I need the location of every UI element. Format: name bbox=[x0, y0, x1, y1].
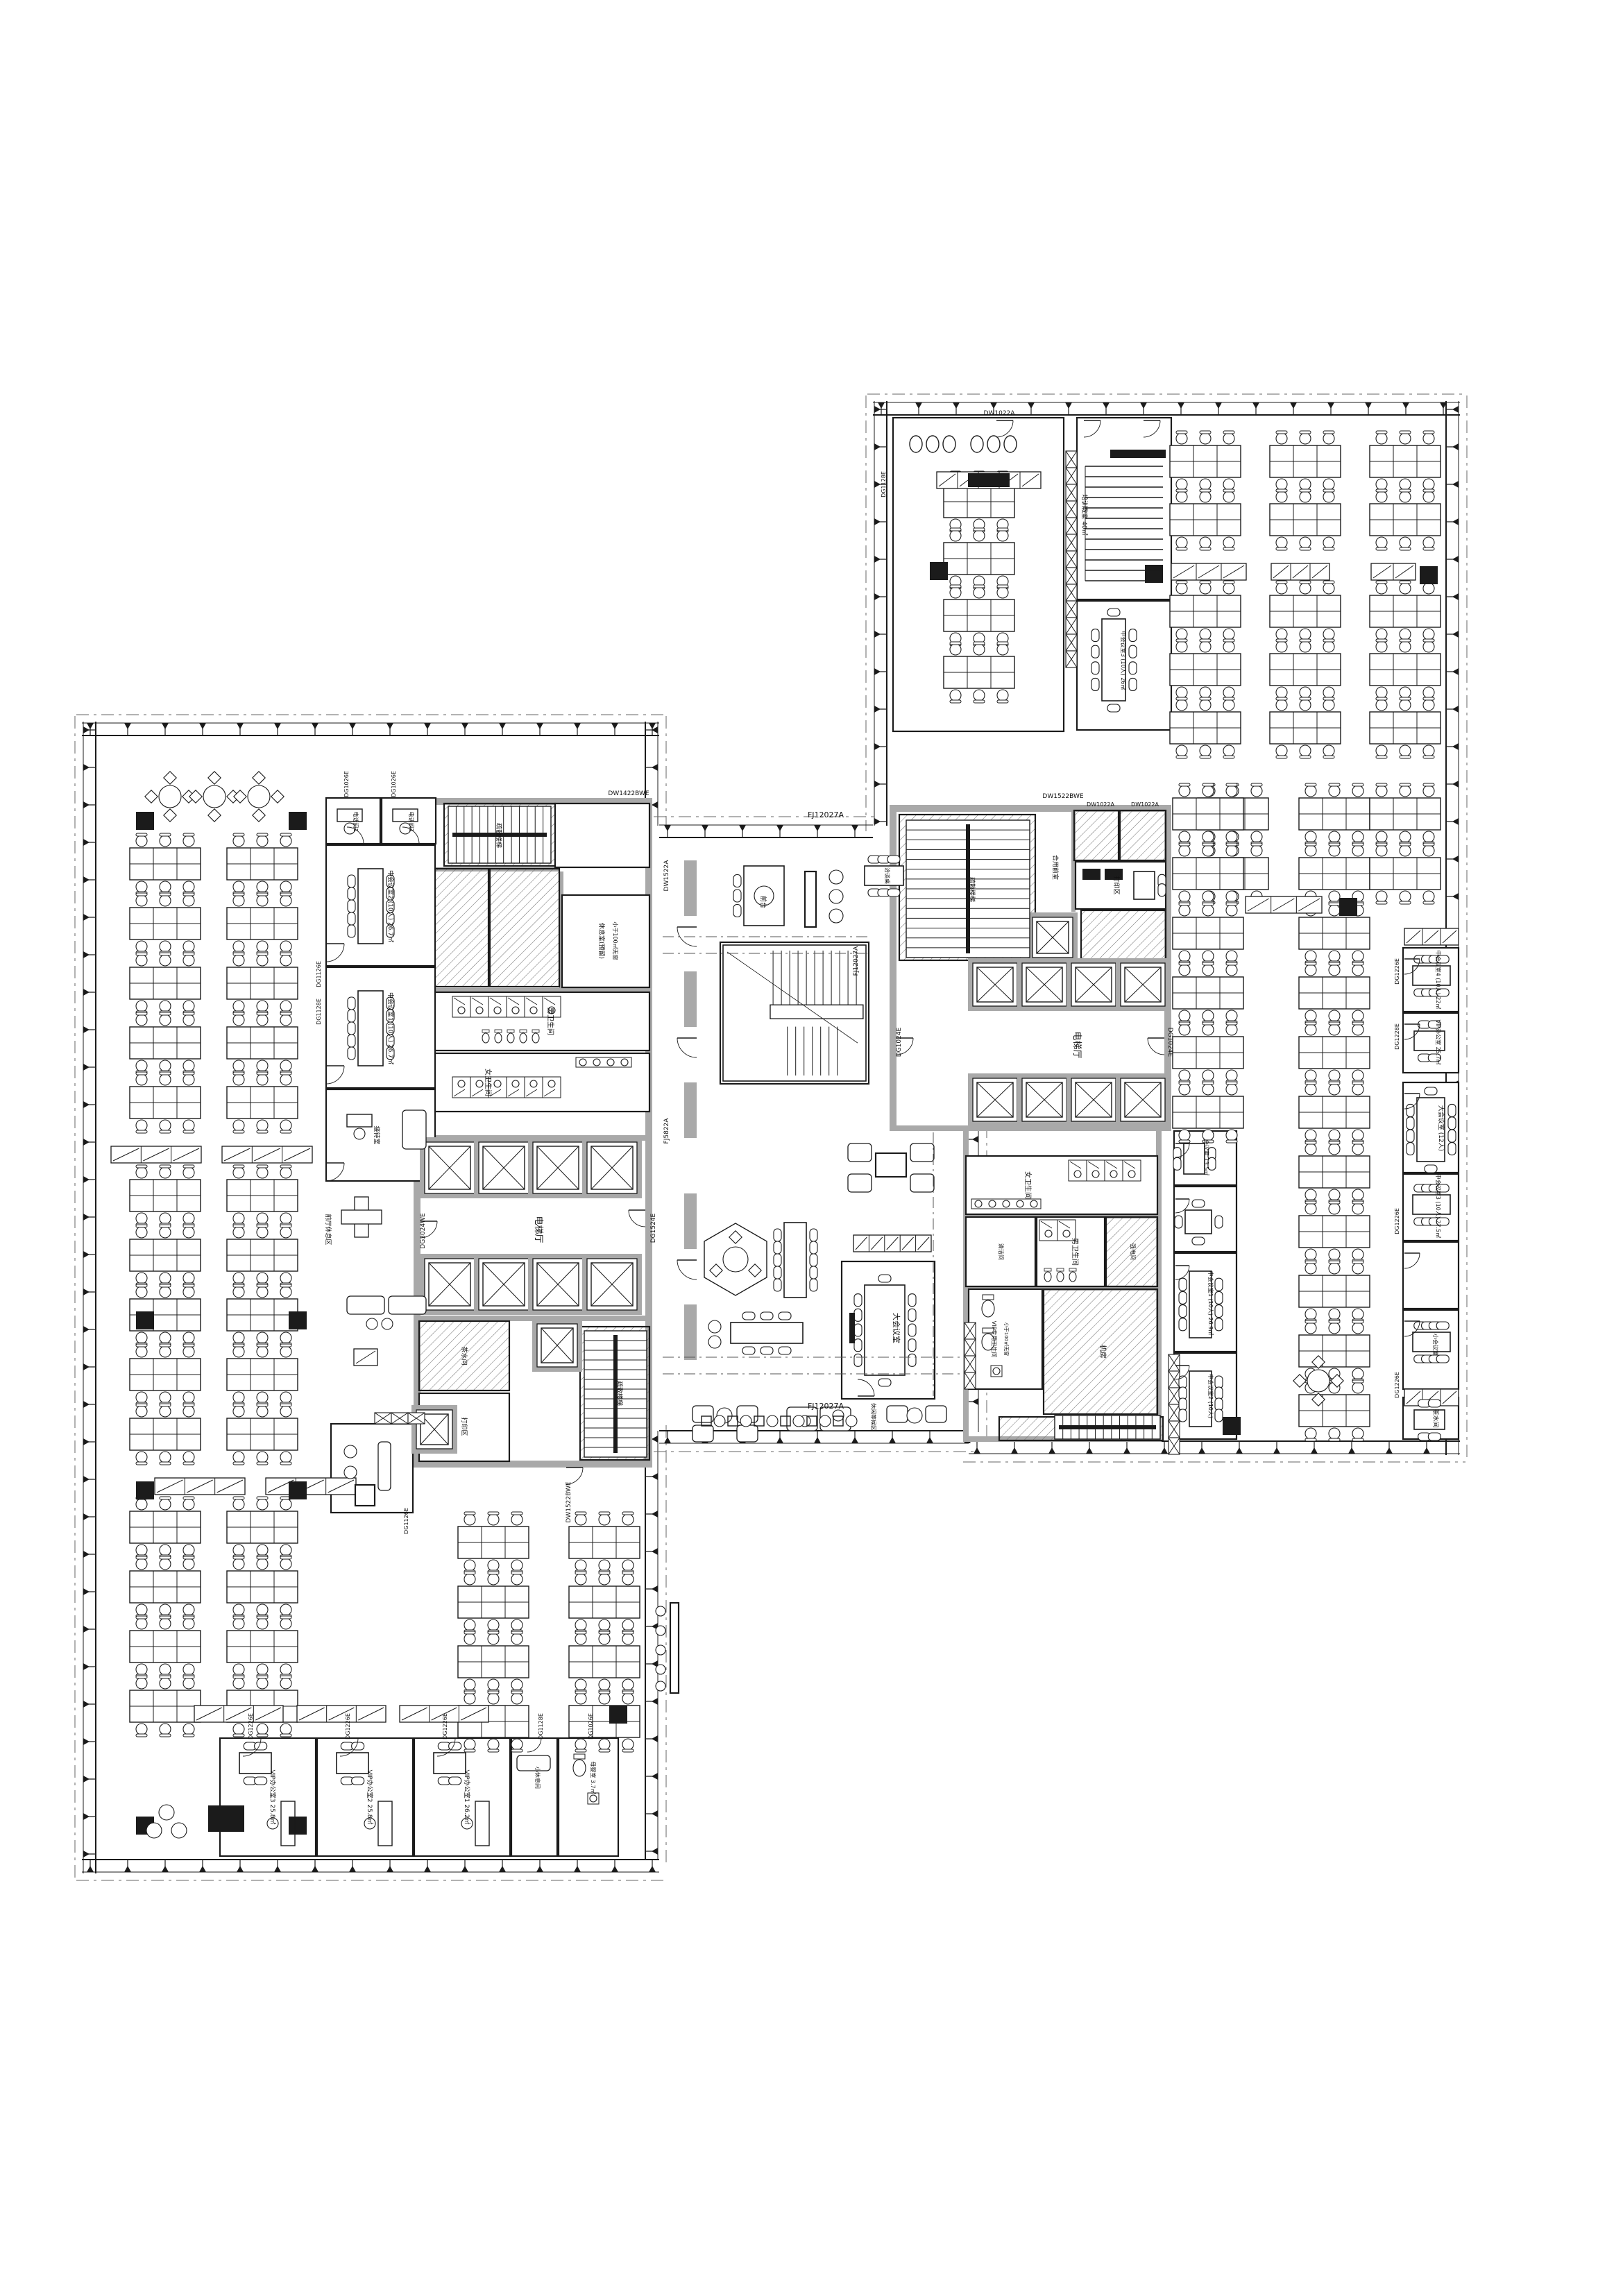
plan-label-text: DG1026E bbox=[588, 1713, 594, 1740]
desk-cluster bbox=[1173, 1082, 1243, 1143]
toilet-fixture bbox=[573, 1754, 586, 1776]
plan-label-text: 前厅休息区 bbox=[324, 1214, 332, 1245]
solid-fixture bbox=[1082, 869, 1101, 880]
plan-label: 前厅休息区 bbox=[324, 1214, 332, 1245]
meeting-table bbox=[731, 1312, 803, 1354]
interior-wall bbox=[890, 1125, 1170, 1131]
desk-cluster bbox=[130, 1404, 201, 1465]
plan-label: VIP办公室 25.7㎡ bbox=[1435, 1019, 1442, 1064]
desk-zone bbox=[1170, 431, 1441, 550]
plan-label-text: DG1126E bbox=[403, 1508, 409, 1534]
exterior-wall-band bbox=[76, 1860, 665, 1880]
room bbox=[355, 1485, 375, 1506]
plan-label-text: DG1226E bbox=[345, 1713, 351, 1740]
sofa bbox=[378, 1442, 391, 1490]
elevator-shaft bbox=[474, 1137, 534, 1198]
desk-cluster bbox=[1173, 1022, 1243, 1083]
plan-label: DG1226E bbox=[442, 1713, 448, 1740]
plan-label-text: 前台 bbox=[759, 896, 767, 908]
plan-label: 疏散楼梯 bbox=[615, 1381, 624, 1406]
storage-cabinet bbox=[354, 1349, 377, 1366]
plan-label-text: 疏散楼梯 bbox=[615, 1381, 624, 1406]
plan-label: 中会议室3 (10人) 26㎡ bbox=[1120, 631, 1127, 690]
meeting-table bbox=[239, 1742, 271, 1785]
desk-zone bbox=[944, 471, 1014, 703]
plan-label-text: 培训教室 40㎡ bbox=[1080, 494, 1089, 535]
desk-cluster bbox=[458, 1631, 529, 1692]
storage-cabinet bbox=[1271, 563, 1329, 580]
desk-zone bbox=[1170, 581, 1441, 758]
exterior-wall-band bbox=[75, 716, 96, 1879]
locker-cabinet bbox=[1169, 1354, 1180, 1454]
stool bbox=[829, 870, 843, 884]
plan-label: 中会议室1 (10人) 26.9㎡ bbox=[1207, 1271, 1214, 1335]
desk-cluster bbox=[1170, 581, 1241, 642]
door-swing bbox=[629, 1210, 645, 1227]
plan-label-text: DG1128E bbox=[538, 1713, 544, 1740]
meeting-table bbox=[1413, 1184, 1450, 1225]
desk-cluster bbox=[227, 1072, 298, 1133]
desk-cluster bbox=[130, 1497, 201, 1558]
plan-label: 电话间1 bbox=[352, 811, 359, 831]
storage-cabinet bbox=[266, 1478, 356, 1495]
plan-label: DG1126E bbox=[403, 1508, 409, 1534]
desk-cluster bbox=[1370, 697, 1441, 758]
elevator-shaft bbox=[1017, 1073, 1071, 1126]
plan-label-text: 男卫生间 bbox=[1071, 1238, 1080, 1266]
plan-label-text: DG1226E bbox=[442, 1713, 448, 1740]
stool bbox=[171, 1823, 187, 1838]
interior-wall bbox=[684, 1082, 697, 1138]
interior-wall bbox=[684, 860, 697, 916]
desk-zone bbox=[1173, 783, 1243, 1143]
plan-label: 电梯厅 bbox=[533, 1216, 543, 1243]
plan-label-text: 休闲等候区 bbox=[870, 1403, 877, 1431]
desk-cluster bbox=[1299, 1380, 1370, 1441]
plan-label: 小休息间 bbox=[534, 1767, 541, 1789]
plan-label: 女卫生间 bbox=[1023, 1171, 1033, 1199]
plan-label-text: 中会议室1 (10人) 26.7㎡ bbox=[386, 992, 395, 1064]
plan-label-text: DG1226E bbox=[248, 1713, 254, 1740]
plan-label: DW1522BWE bbox=[566, 1481, 572, 1522]
hatched-room bbox=[490, 869, 559, 987]
plan-label-text: 洽谈桌 bbox=[884, 867, 891, 884]
desk-cluster bbox=[130, 1676, 201, 1737]
plan-label: 母婴室 3.7㎡ bbox=[590, 1761, 597, 1794]
plan-label: 培训教室 40㎡ bbox=[1080, 494, 1089, 535]
elevator-shaft bbox=[582, 1254, 642, 1315]
desk-cluster bbox=[130, 1072, 201, 1133]
plan-label: DG1128E bbox=[881, 471, 887, 498]
stool bbox=[829, 909, 843, 923]
plan-label-text: DG1026E bbox=[391, 771, 397, 797]
plan-label: DW1022A bbox=[1131, 801, 1159, 808]
desk-cluster bbox=[227, 1556, 298, 1617]
plan-label: DG1126E bbox=[316, 961, 322, 987]
plan-label: DG1226E bbox=[345, 1713, 351, 1740]
desk-cluster bbox=[1299, 1022, 1370, 1083]
stool bbox=[366, 1318, 377, 1329]
plan-label: 疏散楼梯 bbox=[968, 877, 976, 902]
desk-cluster bbox=[1370, 783, 1441, 844]
plan-label: DW1522A bbox=[663, 860, 670, 892]
plan-label-text: DG1026E bbox=[343, 771, 350, 797]
toilet-fixture bbox=[982, 1295, 994, 1317]
plan-label-text: 强电间 bbox=[1130, 1243, 1137, 1260]
round-table bbox=[234, 772, 284, 822]
plan-label: VIP办公室3 25.8㎡ bbox=[269, 1770, 277, 1825]
plan-label-text: 电梯厅 bbox=[533, 1216, 543, 1243]
stool bbox=[708, 1336, 721, 1348]
plan-label-text: DW1422BWE bbox=[608, 790, 649, 797]
plan-label: 疏散楼梯 bbox=[495, 823, 503, 848]
desk-cluster bbox=[1299, 1201, 1370, 1262]
cross-sofa bbox=[341, 1197, 382, 1237]
desk-cluster bbox=[130, 953, 201, 1014]
stool bbox=[656, 1626, 665, 1635]
structural-column bbox=[1223, 1417, 1241, 1435]
plan-label-text: FJ12027A bbox=[853, 946, 860, 976]
plan-label: 机房 bbox=[1098, 1345, 1107, 1359]
door-swing bbox=[677, 1038, 697, 1057]
sofa bbox=[692, 1406, 713, 1422]
plan-label: 合用前室 bbox=[1051, 855, 1060, 880]
exterior-wall-band bbox=[76, 715, 665, 735]
interior-wall bbox=[684, 971, 697, 1027]
plan-label-text: 打印区 bbox=[460, 1417, 468, 1436]
plan-label-text: DG1226E bbox=[1394, 1372, 1400, 1398]
room bbox=[1403, 1242, 1459, 1309]
plan-label-text: 小会议室 bbox=[1432, 1334, 1439, 1356]
elevator-shaft bbox=[968, 1073, 1022, 1126]
exterior-wall-band bbox=[645, 1425, 666, 1865]
plan-label-text: DG1128E bbox=[881, 471, 887, 498]
storage-cabinet bbox=[155, 1478, 245, 1495]
exterior-wall-band bbox=[963, 1441, 1465, 1462]
desk-zone bbox=[1370, 783, 1441, 904]
desk-cluster bbox=[944, 528, 1014, 589]
desk-cluster bbox=[227, 1012, 298, 1073]
interior-wall bbox=[890, 805, 897, 1131]
desk-cluster bbox=[1299, 783, 1370, 844]
plan-label: 小于100㎡无窗 bbox=[612, 921, 619, 960]
plan-label-text: 女卫生间 bbox=[1023, 1171, 1033, 1199]
plan-label: 会议室 13.5㎡ bbox=[1203, 1139, 1210, 1175]
plan-label-text: DW1522BWE bbox=[1042, 793, 1083, 800]
plan-label: DW1522BWE bbox=[1042, 793, 1083, 800]
sofa bbox=[692, 1425, 713, 1442]
desk-cluster bbox=[1370, 431, 1441, 492]
sofa bbox=[887, 1406, 908, 1422]
structural-column bbox=[136, 812, 154, 830]
desk-cluster bbox=[1299, 1141, 1370, 1202]
stool bbox=[907, 1408, 922, 1423]
desk-cluster bbox=[1270, 697, 1341, 758]
elevator-shaft bbox=[528, 1254, 588, 1315]
sofa bbox=[402, 1110, 426, 1149]
structural-column bbox=[289, 1311, 307, 1329]
stair bbox=[906, 820, 1030, 958]
door-swing bbox=[677, 1260, 697, 1279]
locker-cabinet bbox=[1066, 451, 1077, 667]
desk-cluster bbox=[944, 642, 1014, 703]
feature-stair bbox=[723, 945, 866, 1081]
plan-label: FJ5822A bbox=[663, 1118, 670, 1144]
desk-cluster bbox=[1170, 489, 1241, 550]
plan-label-text: VIP办公室2 25.8㎡ bbox=[366, 1770, 374, 1825]
plan-label-text: FJ12027A bbox=[808, 1402, 844, 1411]
stool bbox=[344, 1445, 357, 1458]
plan-label: 休闲等候区 bbox=[870, 1403, 877, 1431]
stool bbox=[382, 1318, 393, 1329]
plan-label: DG1024E bbox=[896, 1027, 903, 1057]
meeting-table bbox=[865, 856, 903, 896]
plan-label: 电梯厅 bbox=[1071, 1031, 1082, 1058]
floor-plan-svg: FJ12027ADW1522AFJ5822AFJ12027AFJ12027A休闲… bbox=[0, 0, 1623, 2296]
plan-label-text: 疏散楼梯 bbox=[495, 823, 503, 848]
desk-cluster bbox=[1270, 581, 1341, 642]
desk-cluster bbox=[569, 1572, 640, 1633]
sink bbox=[991, 1366, 1002, 1377]
plan-label-text: DG3024WE bbox=[420, 1213, 427, 1249]
plan-label-text: 机房 bbox=[1098, 1345, 1107, 1359]
plan-label: 打印区 bbox=[460, 1417, 468, 1436]
plan-label: 中会议室4 (10人) 22㎡ bbox=[1435, 951, 1442, 1010]
exterior-wall-band bbox=[866, 396, 887, 831]
desk-cluster bbox=[1173, 962, 1243, 1023]
sofa bbox=[926, 1406, 946, 1422]
plan-label: 茶水间 bbox=[460, 1346, 468, 1365]
room bbox=[876, 1153, 906, 1177]
plan-label-text: 女卫生间 bbox=[484, 1069, 493, 1096]
desk-cluster bbox=[227, 893, 298, 954]
plan-label-text: 电话间1 bbox=[352, 811, 359, 831]
stair bbox=[1055, 1415, 1160, 1439]
storage-cabinet bbox=[1404, 928, 1459, 945]
plan-label: DG1026E bbox=[391, 771, 397, 797]
solid-fixture bbox=[1110, 450, 1166, 458]
desk-cluster bbox=[130, 833, 201, 894]
plan-label-text: 电梯厅 bbox=[1071, 1031, 1082, 1058]
plan-label-text: 茶水间 bbox=[1431, 1409, 1440, 1427]
elevator-shaft bbox=[582, 1137, 642, 1198]
plan-label-text: FJ12027A bbox=[808, 810, 844, 819]
plan-label: 男卫生间 bbox=[546, 1007, 555, 1035]
elevator-shaft bbox=[420, 1137, 479, 1198]
plan-label-text: VIP办公室 25.7㎡ bbox=[1435, 1019, 1442, 1064]
storage-cabinet bbox=[1246, 896, 1322, 913]
desk-cluster bbox=[1170, 431, 1241, 492]
elevator-shaft bbox=[1116, 1073, 1170, 1126]
plan-label-text: 电话间2 bbox=[408, 811, 415, 831]
desk-cluster bbox=[569, 1691, 640, 1752]
plan-label: 女卫生间 bbox=[484, 1069, 493, 1096]
meeting-table bbox=[1134, 871, 1166, 899]
desk-cluster bbox=[227, 833, 298, 894]
plan-label-text: 会议室 13.5㎡ bbox=[1203, 1139, 1210, 1175]
desk-cluster bbox=[130, 1344, 201, 1405]
plan-label: DW1022A bbox=[1087, 801, 1114, 808]
plan-label: DG1026E bbox=[588, 1713, 594, 1740]
desk-cluster bbox=[1370, 581, 1441, 642]
plan-label-text: DG1226E bbox=[1394, 1208, 1400, 1234]
desk-cluster bbox=[458, 1512, 529, 1573]
desk-zone bbox=[130, 1165, 298, 1465]
plan-label-text: 中会议室3 (10人) 27.5㎡ bbox=[1435, 1174, 1442, 1238]
desk-cluster bbox=[227, 1165, 298, 1226]
plan-label-text: VIP专用卫生间 bbox=[991, 1321, 998, 1358]
plan-label: DG1128E bbox=[538, 1713, 544, 1740]
desk-cluster bbox=[1173, 783, 1243, 844]
stool bbox=[656, 1665, 665, 1674]
plan-label: 清洁间 bbox=[998, 1243, 1005, 1260]
plan-label: 小于100㎡无窗 bbox=[1003, 1323, 1010, 1356]
plan-label-text: 接待室 bbox=[373, 1125, 381, 1144]
storage-cabinet bbox=[1371, 563, 1416, 580]
elevator-shaft bbox=[1067, 958, 1121, 1011]
elevator-shaft bbox=[532, 1319, 582, 1372]
plan-label: 中会议室1 (10人) 26.7㎡ bbox=[386, 992, 395, 1064]
plan-label: 中会议室3 (10人) 27.5㎡ bbox=[1435, 1174, 1442, 1238]
plan-label-text: 中会议室2 (10人) 26.7㎡ bbox=[386, 870, 395, 942]
plan-label-text: 母婴室 3.7㎡ bbox=[590, 1761, 597, 1794]
plan-label: VIP专用卫生间 bbox=[991, 1321, 998, 1358]
storage-cabinet bbox=[222, 1146, 312, 1163]
desk-cluster bbox=[130, 1556, 201, 1617]
stool bbox=[656, 1645, 665, 1655]
plan-label-text: DW1022A bbox=[984, 410, 1016, 417]
sofa bbox=[910, 1174, 934, 1192]
plan-label: FJ12027A bbox=[808, 1402, 844, 1411]
plan-label-text: 休息室(预留) bbox=[597, 923, 606, 959]
structural-column bbox=[930, 562, 948, 580]
elevator-shaft bbox=[1017, 958, 1071, 1011]
meeting-table bbox=[337, 1742, 368, 1785]
desk-cluster bbox=[227, 1616, 298, 1677]
interior-wall bbox=[684, 1304, 697, 1360]
desk-cluster bbox=[1170, 639, 1241, 700]
desk-cluster bbox=[1173, 903, 1243, 964]
plan-label: FJ12027A bbox=[853, 946, 860, 976]
plan-label: 前台 bbox=[759, 896, 767, 908]
desk-cluster bbox=[227, 1284, 298, 1345]
meeting-table bbox=[1413, 955, 1450, 996]
storage-cabinet bbox=[297, 1706, 386, 1722]
elevator-shaft bbox=[420, 1254, 479, 1315]
stool bbox=[833, 1410, 844, 1421]
solid-fixture bbox=[849, 1313, 855, 1343]
plan-label: FJ12027A bbox=[808, 810, 844, 819]
desk-cluster bbox=[569, 1512, 640, 1573]
meeting-table bbox=[774, 1223, 817, 1298]
plan-label: DG1226E bbox=[248, 1713, 254, 1740]
sofa bbox=[347, 1296, 384, 1314]
plan-label: 小会议室 bbox=[1432, 1334, 1439, 1356]
plan-label: 茶水间 bbox=[1431, 1409, 1440, 1427]
plan-label-text: 男卫生间 bbox=[546, 1007, 555, 1035]
desk-cluster bbox=[227, 1344, 298, 1405]
desk-cluster bbox=[1370, 489, 1441, 550]
solid-fixture bbox=[208, 1805, 244, 1832]
desk-cluster bbox=[1299, 1261, 1370, 1322]
plan-label: 洽谈桌 bbox=[884, 867, 891, 884]
plan-label-text: 小休息间 bbox=[534, 1767, 541, 1789]
elevator-shaft bbox=[1028, 912, 1078, 962]
plan-label-text: FJ5822A bbox=[663, 1118, 670, 1144]
desk-cluster bbox=[1299, 1320, 1370, 1381]
room bbox=[562, 895, 649, 987]
plan-label: DW1022A bbox=[984, 410, 1016, 417]
plan-label: 打印区 bbox=[1112, 876, 1121, 894]
locker-cabinet bbox=[375, 1413, 425, 1424]
stair bbox=[584, 1331, 647, 1457]
desk-cluster bbox=[130, 893, 201, 954]
room bbox=[805, 871, 816, 927]
storage-cabinet bbox=[194, 1706, 283, 1722]
door-swing bbox=[566, 1468, 583, 1484]
elevator-shaft bbox=[968, 958, 1022, 1011]
stool bbox=[656, 1606, 665, 1616]
plan-label-text: DW1522BWE bbox=[566, 1481, 572, 1522]
desk-cluster bbox=[1299, 843, 1370, 904]
plan-label: 大会议室 (12人) bbox=[1437, 1105, 1445, 1151]
structural-column bbox=[136, 1311, 154, 1329]
elevator-shaft bbox=[1067, 1073, 1121, 1126]
plan-label-text: 大会议室 (12人) bbox=[1437, 1105, 1445, 1151]
plan-label-text: 清洁间 bbox=[998, 1243, 1005, 1260]
solid-fixture bbox=[968, 473, 1010, 487]
plan-label-text: DG1524E bbox=[650, 1213, 657, 1243]
structural-column bbox=[1339, 898, 1357, 916]
plan-label: 接待室 bbox=[373, 1125, 381, 1144]
desk-cluster bbox=[227, 1404, 298, 1465]
round-table bbox=[189, 772, 239, 822]
plan-label-text: DG1228E bbox=[1394, 1023, 1400, 1050]
desk-cluster bbox=[944, 585, 1014, 646]
door-swing bbox=[1148, 1038, 1164, 1055]
desk-cluster bbox=[1270, 639, 1341, 700]
plan-label: VIP办公室1 26.2㎡ bbox=[463, 1770, 471, 1825]
plan-label-text: DW1022A bbox=[1131, 801, 1159, 808]
hatched-room bbox=[1081, 910, 1166, 960]
sink bbox=[588, 1793, 599, 1804]
plan-label-text: 中会议室1 (10人) 26.9㎡ bbox=[1207, 1271, 1214, 1335]
plan-label-text: 小于100㎡无窗 bbox=[612, 921, 619, 960]
lounge-pod bbox=[704, 1223, 767, 1295]
desk-cluster bbox=[227, 1225, 298, 1286]
elevator-shaft bbox=[528, 1137, 588, 1198]
room bbox=[555, 803, 649, 867]
plan-label-text: 茶水间 bbox=[460, 1346, 468, 1365]
plan-label: DG1024E bbox=[1166, 1028, 1173, 1057]
desk-cluster bbox=[130, 1012, 201, 1073]
exterior-wall-band bbox=[867, 394, 1465, 415]
desk-cluster bbox=[227, 1497, 298, 1558]
plan-label: VIP办公室2 25.8㎡ bbox=[366, 1770, 374, 1825]
desk-cluster bbox=[1370, 843, 1441, 904]
plan-label-text: DG1024E bbox=[896, 1027, 903, 1057]
meeting-table bbox=[434, 1742, 466, 1785]
desk-cluster bbox=[130, 1225, 201, 1286]
plan-label-text: 合用前室 bbox=[1051, 855, 1060, 880]
desk-cluster bbox=[130, 1165, 201, 1226]
desk-cluster bbox=[569, 1631, 640, 1692]
structural-column bbox=[289, 1481, 307, 1499]
desk-cluster bbox=[130, 1616, 201, 1677]
plan-label: 中会议室2 (10人) 26.7㎡ bbox=[386, 870, 395, 942]
locker-cabinet bbox=[965, 1323, 976, 1389]
plan-label: DG1228E bbox=[1394, 1023, 1400, 1050]
